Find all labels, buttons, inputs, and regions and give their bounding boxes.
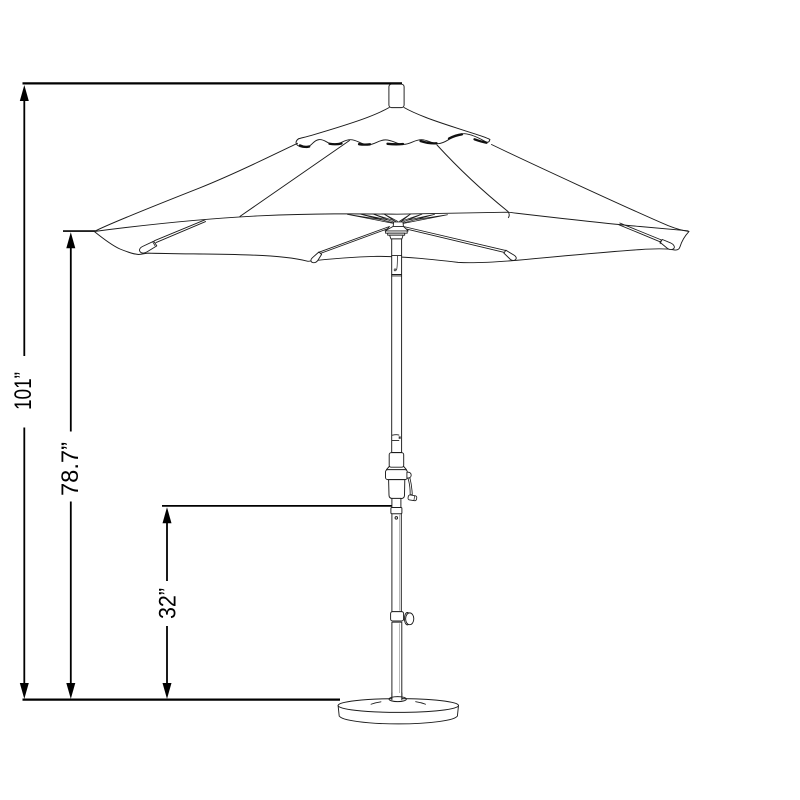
svg-text:32”: 32”: [154, 588, 181, 619]
svg-text:101”: 101”: [10, 372, 37, 410]
svg-text:78.7”: 78.7”: [57, 442, 84, 496]
